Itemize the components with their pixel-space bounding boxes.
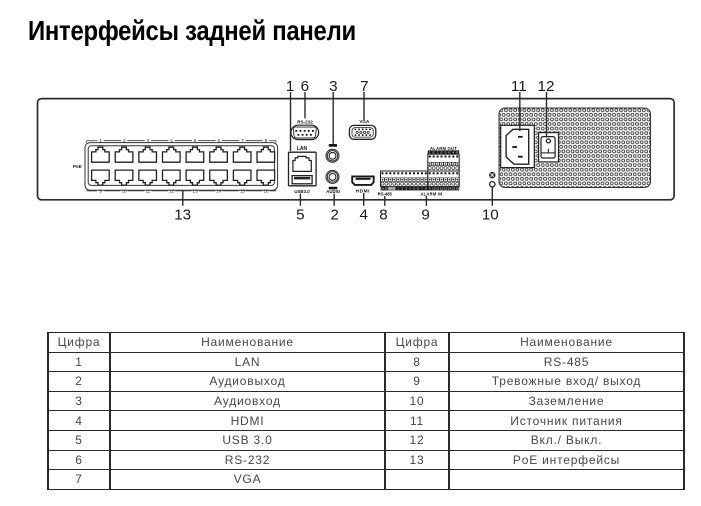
svg-text:10: 10 — [122, 189, 128, 194]
svg-text:13: 13 — [193, 189, 199, 194]
svg-text:1: 1 — [99, 138, 102, 143]
svg-text:PoE: PoE — [73, 164, 82, 169]
svg-text:AUDIO: AUDIO — [326, 189, 341, 194]
svg-text:2: 2 — [123, 138, 126, 143]
svg-text:11: 11 — [511, 78, 527, 95]
svg-text:3: 3 — [147, 138, 150, 143]
svg-text:HDMI: HDMI — [356, 189, 370, 195]
svg-text:9: 9 — [421, 206, 429, 223]
svg-text:4: 4 — [170, 138, 173, 143]
svg-text:2: 2 — [330, 206, 338, 223]
svg-text:16: 16 — [456, 187, 460, 191]
svg-text:13: 13 — [174, 206, 191, 223]
svg-text:8: 8 — [379, 206, 387, 223]
svg-text:4: 4 — [359, 206, 367, 223]
svg-text:5: 5 — [194, 138, 197, 143]
svg-text:16: 16 — [263, 189, 269, 194]
svg-text:14: 14 — [216, 189, 222, 194]
svg-text:12: 12 — [169, 189, 175, 194]
svg-text:RS-485: RS-485 — [378, 191, 393, 196]
svg-text:11: 11 — [145, 189, 150, 194]
svg-text:10: 10 — [482, 206, 499, 223]
svg-text:D-: D- — [385, 187, 388, 191]
svg-text:15: 15 — [240, 189, 246, 194]
svg-text:6: 6 — [217, 138, 220, 143]
svg-text:7: 7 — [241, 138, 244, 143]
svg-text:LAN: LAN — [297, 146, 308, 152]
svg-text:9: 9 — [99, 189, 102, 194]
svg-text:USB3.0: USB3.0 — [294, 189, 310, 194]
svg-text:5: 5 — [296, 206, 304, 223]
svg-text:RS-232: RS-232 — [297, 119, 313, 124]
svg-text:ALARM IN: ALARM IN — [420, 191, 442, 196]
svg-text:VGA: VGA — [359, 119, 370, 124]
svg-text:8: 8 — [265, 138, 268, 143]
